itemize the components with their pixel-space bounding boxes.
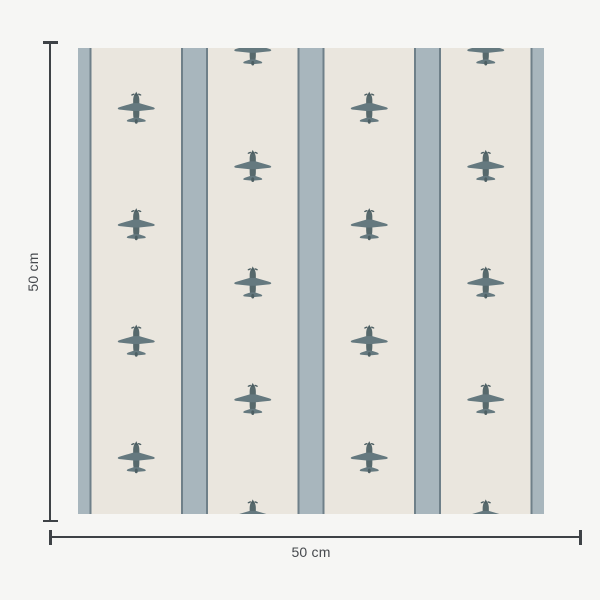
width-dimension-cap-right — [579, 530, 582, 545]
stripe — [533, 48, 545, 514]
pattern-swatch-svg: .pw{fill:#65797f} .pb{fill:#57696c} .pd{… — [78, 48, 544, 514]
height-dimension-label: 50 cm — [24, 212, 42, 332]
figure-canvas: .pw{fill:#65797f} .pb{fill:#57696c} .pd{… — [0, 0, 600, 600]
stripe — [300, 48, 323, 514]
pattern-swatch: .pw{fill:#65797f} .pb{fill:#57696c} .pd{… — [78, 48, 544, 514]
stripe — [416, 48, 439, 514]
stripe — [183, 48, 206, 514]
width-dimension-label: 50 cm — [251, 543, 371, 561]
stripe — [78, 48, 90, 514]
height-dimension-line — [49, 42, 51, 521]
width-dimension-line — [50, 536, 581, 538]
height-dimension-cap-bottom — [43, 520, 58, 523]
